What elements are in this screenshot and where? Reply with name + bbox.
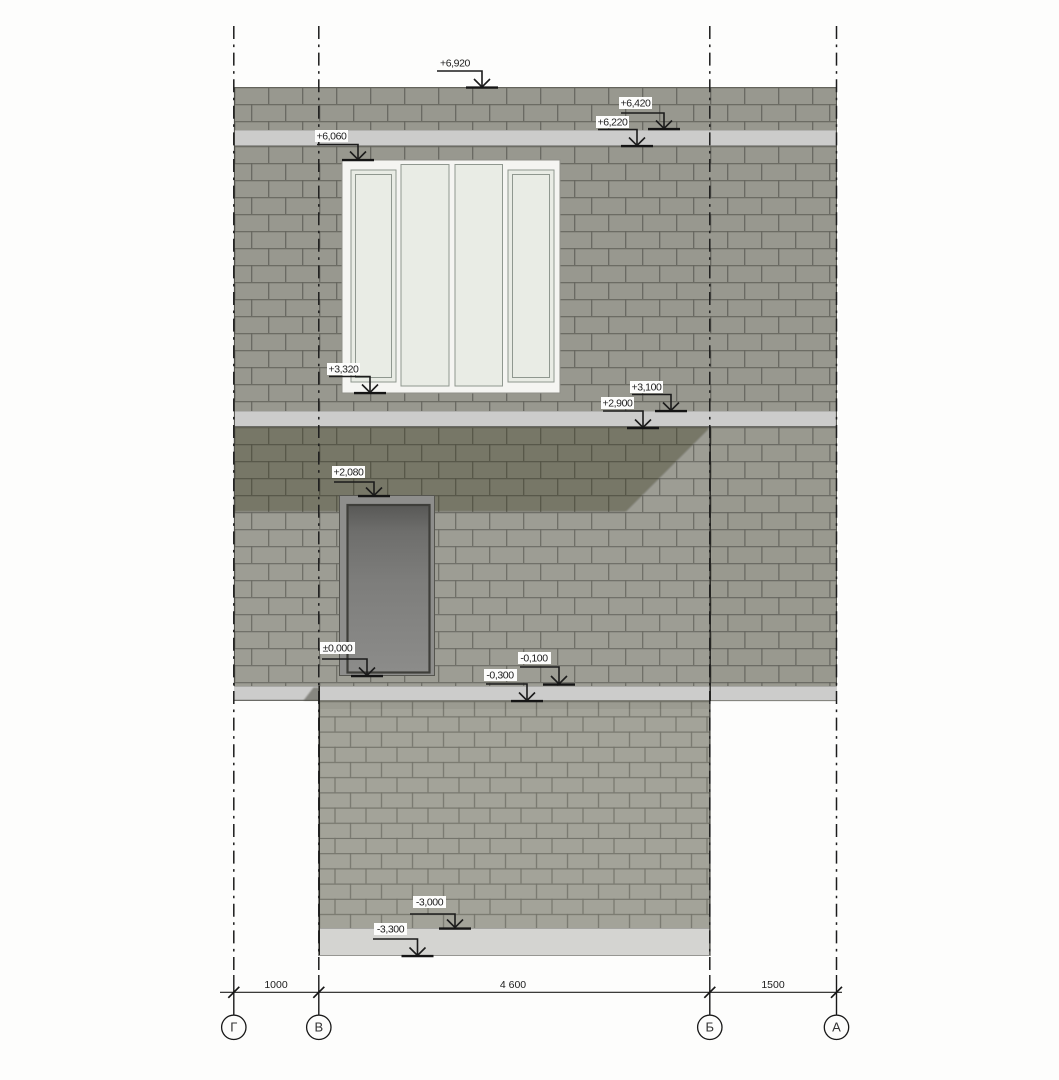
svg-text:1000: 1000 [264,979,288,991]
svg-text:+6,060: +6,060 [316,131,347,143]
svg-text:+6,220: +6,220 [597,117,628,129]
svg-text:-0,100: -0,100 [520,653,548,665]
svg-text:А: А [832,1020,841,1035]
svg-text:4 600: 4 600 [500,979,526,991]
svg-text:±0,000: ±0,000 [323,643,353,655]
svg-text:-3,000: -3,000 [416,897,444,909]
svg-text:+3,320: +3,320 [328,364,359,376]
svg-text:+2,900: +2,900 [602,398,633,410]
svg-text:-3,300: -3,300 [377,924,405,936]
svg-text:Г: Г [230,1020,237,1035]
svg-text:В: В [314,1020,323,1035]
svg-text:1500: 1500 [761,979,785,991]
svg-text:+6,420: +6,420 [620,98,651,110]
svg-text:+3,100: +3,100 [631,382,662,394]
svg-text:+6,920: +6,920 [440,58,471,70]
svg-text:Б: Б [706,1020,715,1035]
svg-text:+2,080: +2,080 [333,467,364,479]
svg-text:-0,300: -0,300 [486,670,514,682]
